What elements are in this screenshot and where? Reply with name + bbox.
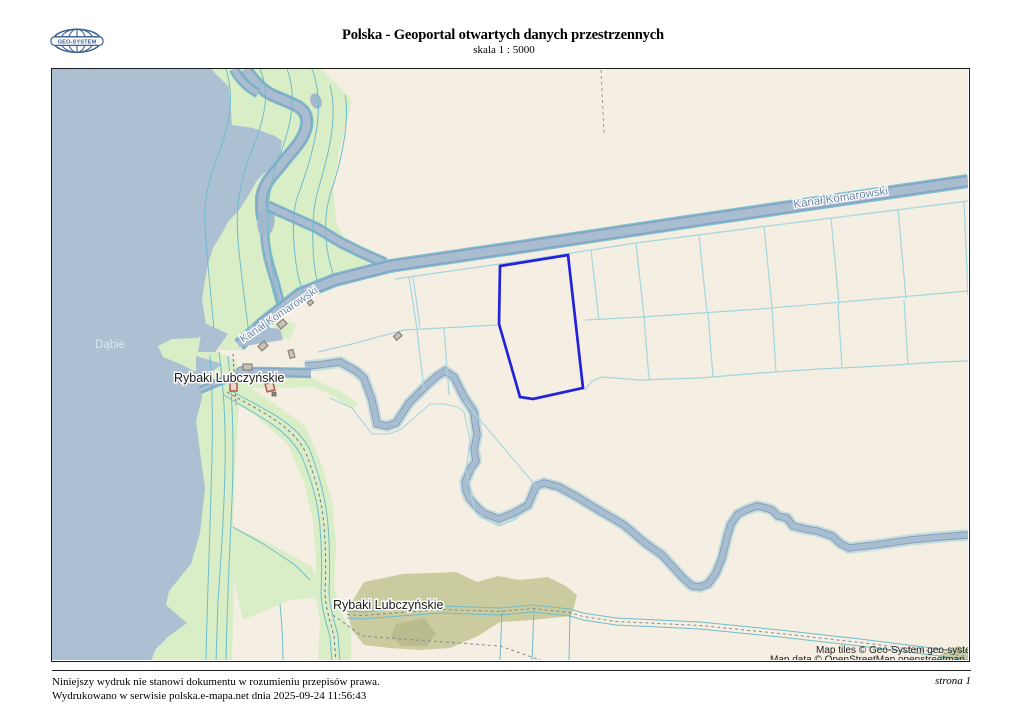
svg-text:Rybaki Lubczyńskie: Rybaki Lubczyńskie — [333, 598, 444, 612]
svg-text:Map data © OpenStreetMap opens: Map data © OpenStreetMap openstreetmap.o… — [770, 655, 968, 661]
svg-text:Rybaki Lubczyńskie: Rybaki Lubczyńskie — [174, 371, 285, 385]
svg-text:Dąbie: Dąbie — [95, 339, 125, 351]
